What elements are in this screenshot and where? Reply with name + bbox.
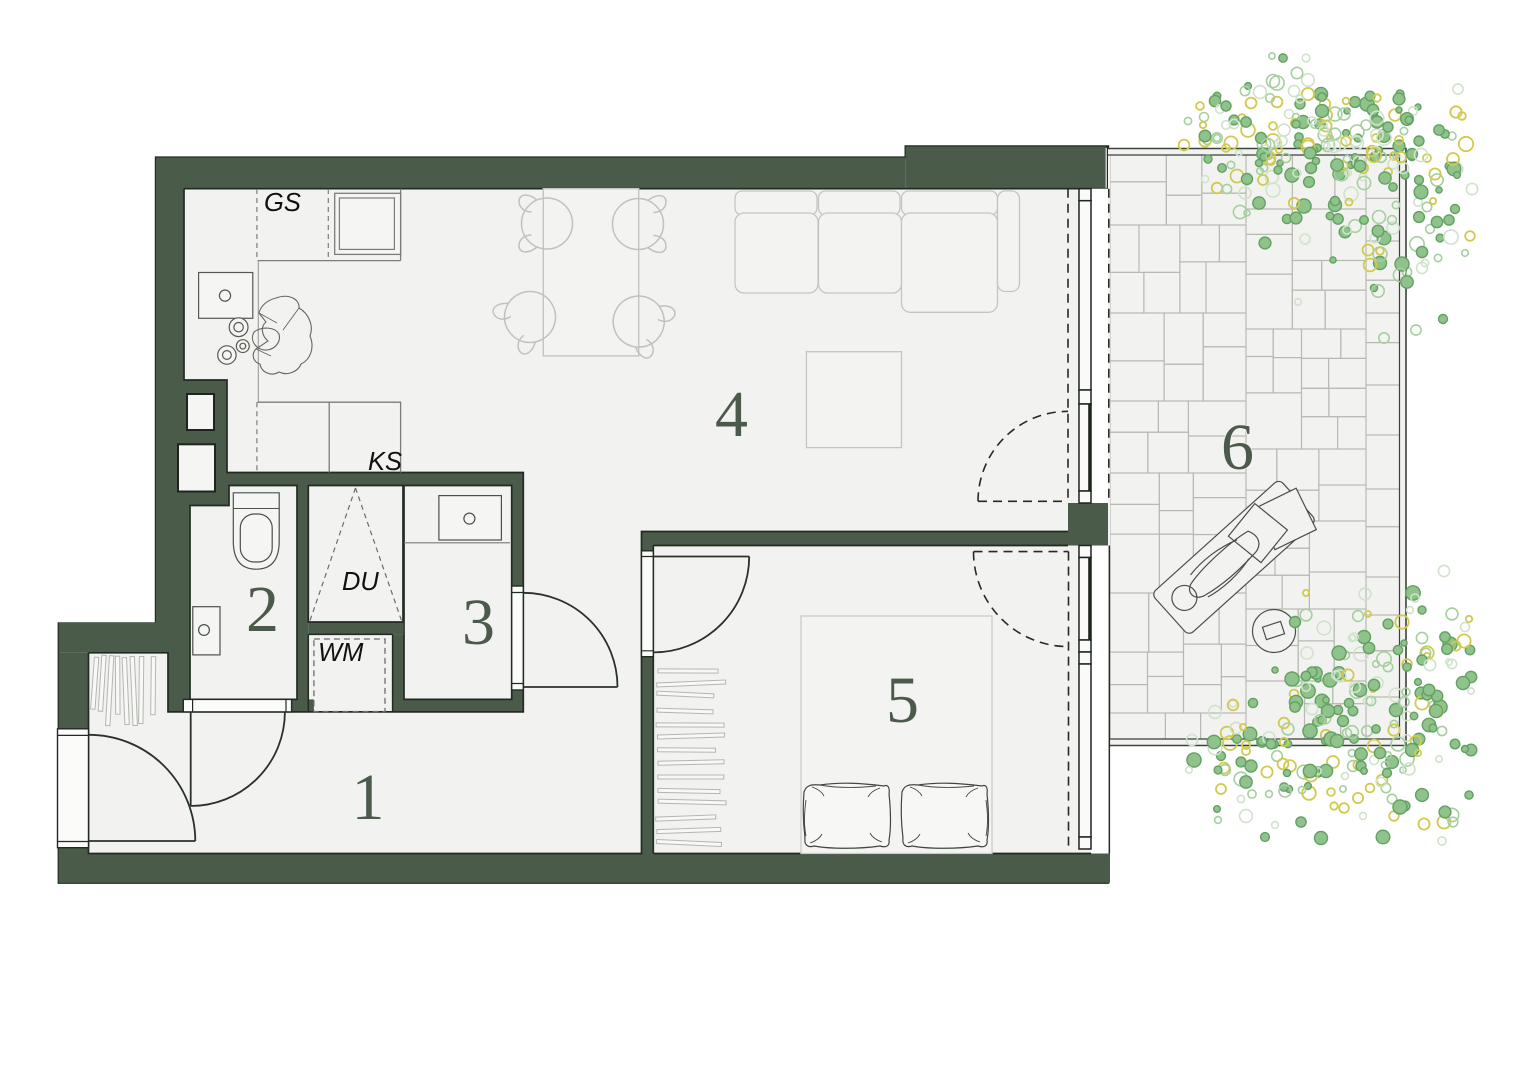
svg-text:6: 6 bbox=[1221, 411, 1254, 484]
svg-text:DU: DU bbox=[342, 568, 379, 596]
svg-text:GS: GS bbox=[264, 189, 301, 217]
svg-text:3: 3 bbox=[462, 586, 495, 659]
svg-text:KS: KS bbox=[368, 448, 402, 476]
svg-text:WM: WM bbox=[318, 639, 364, 667]
svg-text:1: 1 bbox=[352, 761, 385, 834]
svg-text:4: 4 bbox=[715, 378, 748, 451]
svg-text:5: 5 bbox=[886, 664, 919, 737]
svg-text:2: 2 bbox=[246, 573, 279, 646]
